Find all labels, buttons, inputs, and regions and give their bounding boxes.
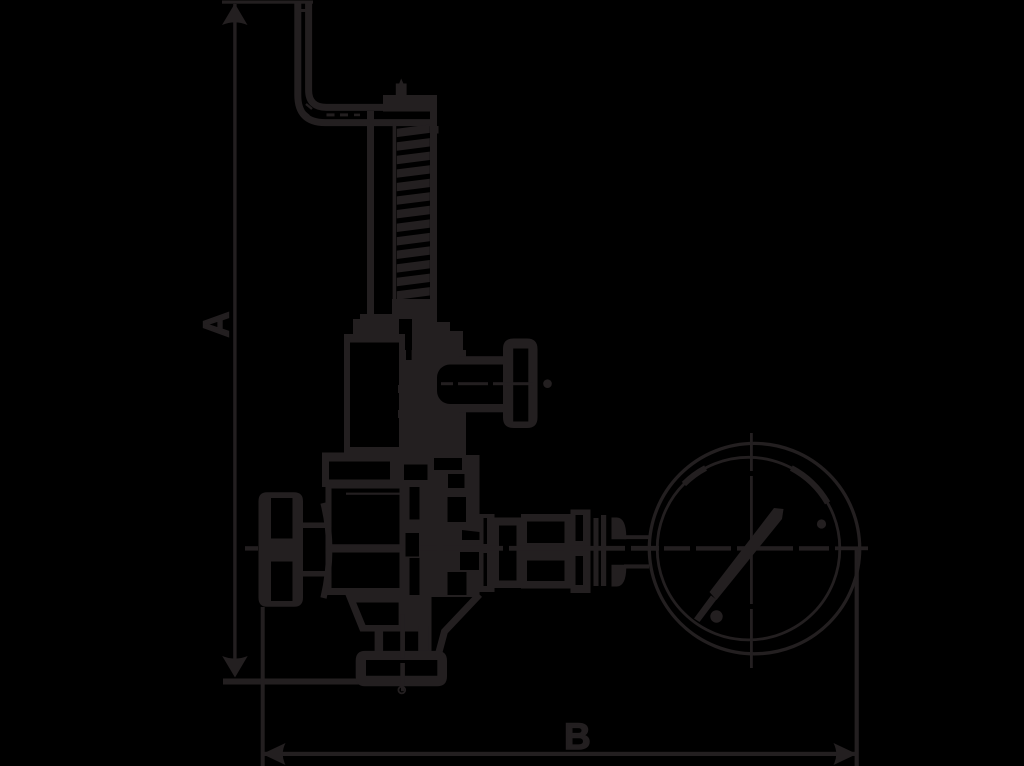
svg-text:B: B [564, 716, 591, 757]
svg-text:A: A [196, 312, 237, 338]
